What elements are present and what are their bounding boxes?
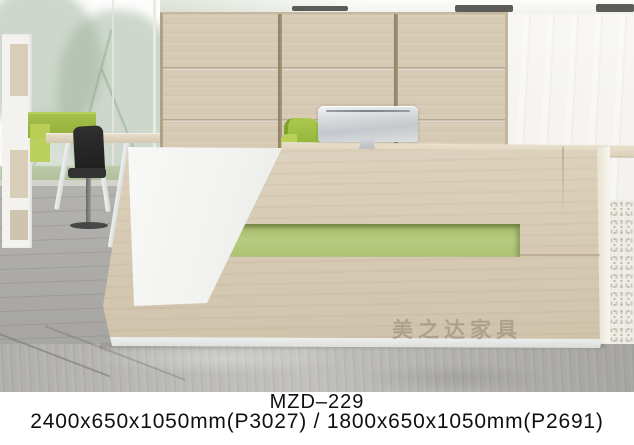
wall-seam: [163, 67, 505, 70]
product-card: 美之达家具 MZD–229 2400x650x1050mm(P3027) / 1…: [0, 0, 634, 445]
shelf-unit: [2, 34, 32, 248]
counter-corner-seam: [562, 147, 564, 217]
caption: MZD–229 2400x650x1050mm(P3027) / 1800x65…: [0, 392, 634, 445]
product-photo: 美之达家具: [0, 0, 634, 392]
dimensions-text: 2400x650x1050mm(P3027) / 1800x650x1050mm…: [0, 410, 634, 433]
office-chair-base: [70, 222, 108, 229]
concrete-floor: [0, 344, 634, 392]
shelf-panel: [10, 150, 28, 198]
shelf-panel: [10, 44, 28, 96]
window-mullion: [112, 0, 114, 182]
monitor-vent: [326, 110, 410, 112]
ceiling-vent: [292, 6, 348, 11]
shelf-panel: [10, 210, 28, 240]
imac-monitor: [318, 106, 418, 142]
office-chair-post: [86, 178, 91, 224]
office-chair-seat: [68, 168, 106, 178]
watermark-text: 美之达家具: [392, 314, 522, 344]
desk-privacy-screen-side: [30, 124, 50, 162]
ceiling-vent: [596, 4, 634, 12]
desk-front-seam: [518, 254, 600, 256]
office-chair-back: [73, 125, 105, 173]
model-number: MZD–229: [0, 392, 634, 412]
wall-divider: [278, 14, 282, 154]
green-accent-stripe: [218, 224, 520, 257]
ceiling-vent: [455, 5, 513, 12]
